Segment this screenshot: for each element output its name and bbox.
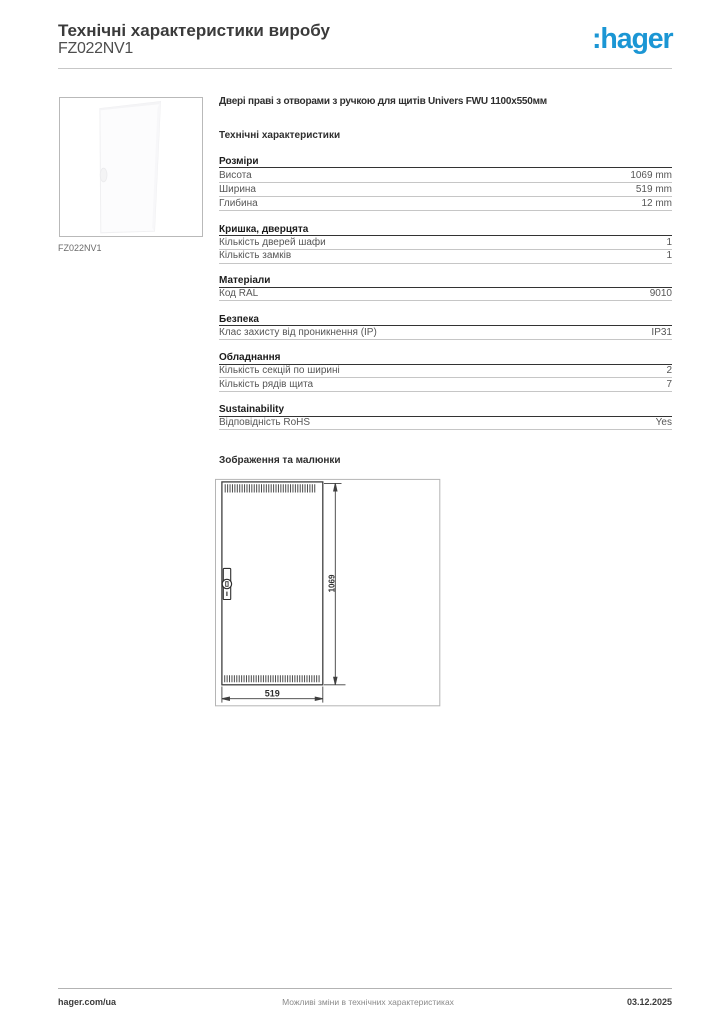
svg-text:519: 519 bbox=[265, 689, 280, 699]
svg-text:1069: 1069 bbox=[328, 574, 337, 592]
